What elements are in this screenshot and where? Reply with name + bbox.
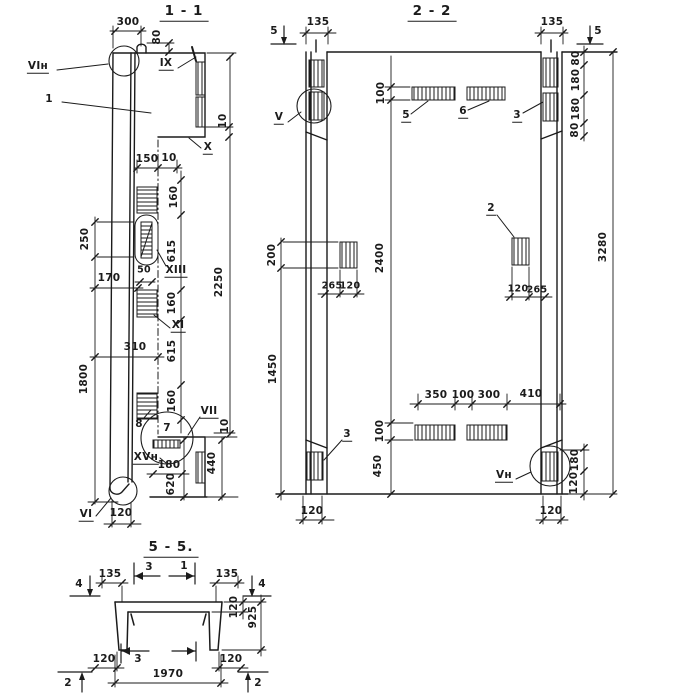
- dim-120-right: 120: [508, 284, 529, 294]
- dim-300: 300: [117, 17, 140, 28]
- dim-310: 310: [124, 342, 147, 353]
- dim-615-a: 615: [167, 240, 178, 263]
- dim-180-mid: 180: [571, 98, 582, 121]
- dim-1970: 1970: [153, 669, 183, 680]
- dim-50: 50: [137, 265, 151, 275]
- detail-label-XI: XI: [171, 320, 186, 333]
- dim-615-b: 615: [167, 340, 178, 363]
- detail-label-VII: VII: [200, 406, 219, 419]
- dim-100-bottom: 100: [375, 420, 386, 443]
- dim-80-top: 80: [571, 50, 582, 65]
- dim-1800: 1800: [79, 364, 90, 394]
- section-1-1-title: 1 - 1: [160, 5, 209, 22]
- dim-100-top: 100: [376, 82, 387, 105]
- dim-120-right-bottom: 120: [569, 472, 580, 495]
- dim-450: 450: [373, 455, 384, 478]
- cut-marker-1-top: 1: [180, 561, 188, 572]
- dim-120-left: 120: [340, 281, 361, 291]
- detail-label-VIn: VIн: [27, 61, 49, 74]
- dim-925: 925: [248, 606, 259, 629]
- cut-marker-4-left: 4: [75, 579, 83, 590]
- item-label-1: 1: [45, 94, 53, 105]
- dim-2400: 2400: [375, 243, 386, 273]
- item-label-5: 5: [401, 110, 411, 123]
- dim-265-right: 265: [527, 285, 548, 295]
- dim-350: 350: [425, 390, 448, 401]
- dim-180-right: 180: [570, 449, 581, 472]
- dim-300-s22: 300: [478, 390, 501, 401]
- detail-label-VI: VI: [79, 509, 94, 522]
- cut-marker-5-right: 5: [594, 26, 602, 37]
- dim-10-mid: 10: [161, 153, 176, 164]
- section-2-2-title: 2 - 2: [408, 5, 457, 22]
- dim-10-bottom: 10: [220, 418, 231, 433]
- dim-160-a: 160: [169, 186, 180, 209]
- dim-3280: 3280: [598, 232, 609, 262]
- item-label-7: 7: [163, 423, 171, 434]
- dim-150: 150: [136, 154, 159, 165]
- section-2-2-lines: [271, 26, 617, 524]
- detail-label-IX: IX: [159, 58, 174, 71]
- dim-80: 80: [152, 29, 163, 44]
- detail-label-V: V: [274, 112, 284, 125]
- cut-marker-5-left: 5: [270, 26, 278, 37]
- dim-120-flange: 120: [229, 596, 240, 619]
- item-label-3-bottom: 3: [342, 429, 352, 442]
- dim-410: 410: [520, 389, 543, 400]
- dim-135-left-s55: 135: [99, 569, 122, 580]
- detail-label-Vn: Vн: [495, 470, 513, 483]
- dim-10-top: 10: [218, 113, 229, 128]
- dim-120-bottom-right: 120: [540, 506, 563, 517]
- dim-120-bottom-right-s55: 120: [220, 654, 243, 665]
- cut-marker-4-right: 4: [258, 579, 266, 590]
- dim-2250: 2250: [214, 267, 225, 297]
- dim-180: 180: [158, 460, 181, 471]
- detail-label-XIII: XIII: [164, 265, 187, 278]
- drawing-linework: [0, 0, 700, 700]
- dim-160-b: 160: [167, 292, 178, 315]
- item-label-8: 8: [135, 419, 143, 430]
- dim-160-c: 160: [167, 390, 178, 413]
- item-label-6: 6: [458, 106, 468, 119]
- dim-250: 250: [80, 228, 91, 251]
- dim-170: 170: [98, 273, 121, 284]
- cut-marker-3-top: 3: [145, 562, 153, 573]
- detail-label-X: X: [203, 142, 213, 155]
- dim-1450: 1450: [268, 354, 279, 384]
- dim-620: 620: [166, 473, 177, 496]
- drawing-sheet: 1 - 1 300 80 VIн 1 IX X 10 150 10 160 61…: [0, 0, 700, 700]
- dim-120-s11: 120: [110, 508, 133, 519]
- dim-120-bottom-left: 120: [301, 506, 324, 517]
- dim-80-mid: 80: [570, 122, 581, 137]
- dim-135-right-s55: 135: [216, 569, 239, 580]
- dim-440: 440: [207, 452, 218, 475]
- dim-100-mid: 100: [452, 390, 475, 401]
- item-label-3-top: 3: [512, 110, 522, 123]
- dim-120-bottom-left-s55: 120: [93, 654, 116, 665]
- cut-marker-3-bottom: 3: [134, 654, 142, 665]
- cut-marker-2-left: 2: [64, 678, 72, 689]
- detail-label-XVn: XVн: [133, 452, 159, 465]
- cut-marker-2-right: 2: [254, 678, 262, 689]
- dim-135-left: 135: [307, 17, 330, 28]
- dim-200: 200: [267, 244, 278, 267]
- dim-180-top: 180: [571, 69, 582, 92]
- dim-135-right: 135: [541, 17, 564, 28]
- item-label-2: 2: [486, 203, 496, 216]
- section-5-5-title: 5 - 5.: [144, 541, 199, 558]
